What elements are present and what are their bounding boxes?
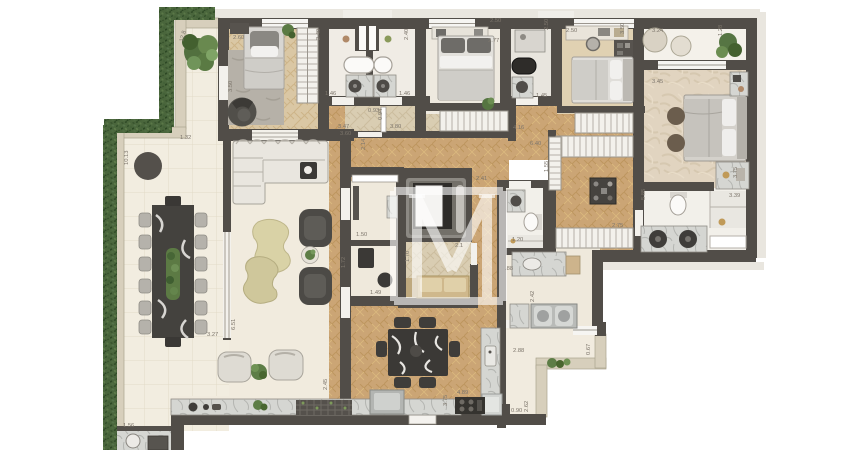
svg-text:2.75: 2.75: [612, 223, 623, 229]
svg-text:3.75: 3.75: [443, 395, 449, 406]
svg-text:3.24: 3.24: [652, 28, 664, 34]
svg-text:1.72: 1.72: [341, 257, 347, 268]
svg-text:1.32: 1.32: [180, 135, 191, 141]
svg-text:1.28: 1.28: [718, 25, 724, 36]
svg-text:10.13: 10.13: [124, 150, 130, 165]
svg-text:3.50: 3.50: [620, 23, 626, 34]
svg-text:2.40: 2.40: [316, 29, 322, 40]
svg-text:2.42: 2.42: [530, 291, 536, 302]
svg-text:1.56: 1.56: [123, 423, 134, 429]
svg-text:2.62: 2.62: [524, 401, 530, 412]
svg-text:2.50: 2.50: [490, 18, 501, 24]
svg-text:1.70: 1.70: [405, 251, 411, 262]
svg-text:2.50: 2.50: [566, 28, 577, 34]
svg-text:0.94: 0.94: [378, 108, 384, 120]
svg-text:6.40: 6.40: [530, 141, 541, 147]
svg-text:1.20: 1.20: [512, 237, 523, 243]
svg-text:3.60: 3.60: [340, 131, 351, 137]
svg-text:0.67: 0.67: [586, 344, 592, 355]
svg-text:4.89: 4.89: [457, 390, 468, 396]
svg-text:2.88: 2.88: [513, 348, 524, 354]
svg-text:3.80: 3.80: [390, 124, 401, 130]
svg-text:1.50: 1.50: [356, 232, 367, 238]
svg-text:5.85: 5.85: [641, 189, 647, 200]
svg-text:3.39: 3.39: [729, 193, 740, 199]
svg-text:2.50: 2.50: [544, 19, 550, 30]
svg-text:2.1: 2.1: [455, 243, 463, 249]
svg-text:2.45: 2.45: [323, 379, 329, 390]
svg-text:4.16: 4.16: [513, 125, 524, 131]
svg-text:1.45: 1.45: [536, 93, 547, 99]
svg-text:1.46: 1.46: [399, 91, 410, 97]
svg-text:3.45: 3.45: [652, 79, 663, 85]
svg-text:.88: .88: [505, 266, 513, 272]
svg-text:1.49: 1.49: [370, 290, 381, 296]
svg-text:1.46: 1.46: [325, 91, 336, 97]
svg-text:1.55: 1.55: [544, 161, 550, 172]
svg-text:3.47: 3.47: [338, 124, 349, 130]
svg-text:2.60: 2.60: [233, 35, 244, 41]
svg-text:2.41: 2.41: [476, 176, 487, 182]
svg-text:0.90: 0.90: [511, 408, 522, 414]
svg-text:2.40: 2.40: [404, 29, 410, 40]
svg-text:3.50: 3.50: [228, 81, 234, 92]
svg-text:3.75: 3.75: [733, 167, 739, 178]
svg-text:2.77: 2.77: [488, 38, 499, 44]
svg-text:3.27: 3.27: [207, 332, 218, 338]
svg-text:2.14: 2.14: [361, 138, 367, 150]
svg-text:6.51: 6.51: [231, 319, 237, 330]
